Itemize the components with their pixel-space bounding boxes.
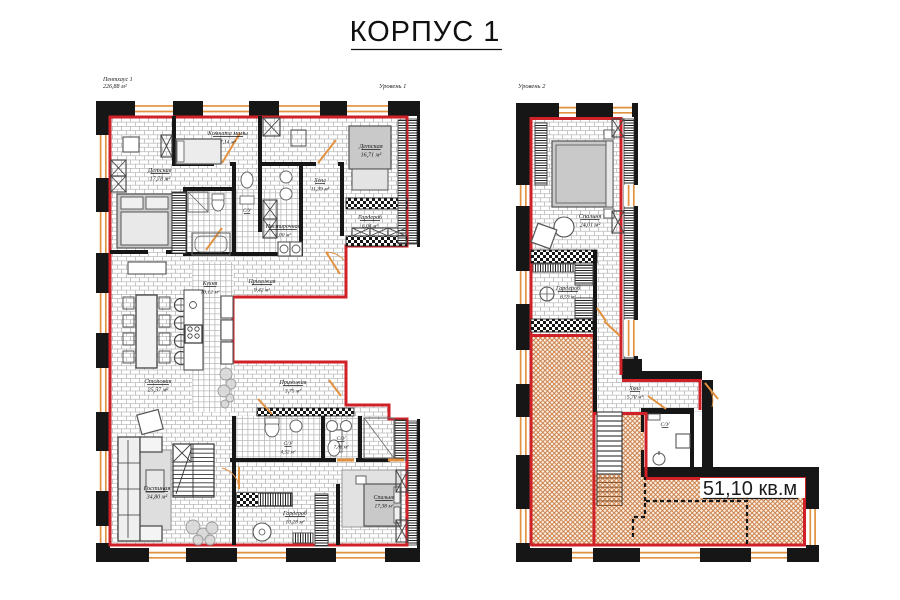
svg-text:17,38 м²: 17,38 м² <box>375 504 394 510</box>
svg-text:Холл: Холл <box>313 178 326 184</box>
svg-text:17,78 м²: 17,78 м² <box>150 177 171 183</box>
svg-text:6,59 м²: 6,59 м² <box>560 295 577 301</box>
svg-text:226,88 м²: 226,88 м² <box>103 84 127 90</box>
svg-text:9,42 м²: 9,42 м² <box>254 287 271 294</box>
svg-text:Кухня: Кухня <box>202 281 218 287</box>
svg-text:34,80 м²: 34,80 м² <box>146 494 168 501</box>
svg-text:Гостиная: Гостиная <box>143 485 171 492</box>
svg-text:С/У: С/У <box>284 441 294 447</box>
svg-text:Постирочная: Постирочная <box>265 224 301 230</box>
svg-text:Уровень 2: Уровень 2 <box>518 83 546 90</box>
svg-text:24,01 м²: 24,01 м² <box>580 222 601 229</box>
svg-text:25,57 м²: 25,57 м² <box>148 388 169 394</box>
svg-text:Детская: Детская <box>147 167 172 174</box>
svg-text:Гардероб: Гардероб <box>555 285 581 292</box>
svg-text:Холл: Холл <box>628 386 641 392</box>
svg-text:Пентхаус 1: Пентхаус 1 <box>102 77 133 83</box>
svg-text:16,71 м²: 16,71 м² <box>361 153 382 159</box>
svg-text:КОРПУС 1: КОРПУС 1 <box>350 16 501 48</box>
svg-text:Прихожая: Прихожая <box>279 380 307 386</box>
svg-text:Спальня: Спальня <box>373 495 394 501</box>
svg-text:6,04 м²: 6,04 м² <box>362 223 379 230</box>
svg-text:Гардероб: Гардероб <box>282 510 308 517</box>
svg-text:51,10 кв.м: 51,10 кв.м <box>703 478 797 500</box>
svg-text:5,70 м²: 5,70 м² <box>627 395 644 401</box>
svg-text:Столовая: Столовая <box>144 378 171 385</box>
svg-text:4,00 м²: 4,00 м² <box>275 232 292 239</box>
svg-text:4,32 м²: 4,32 м² <box>281 450 296 456</box>
svg-text:Спальня: Спальня <box>579 213 602 220</box>
svg-text:3,75 м²: 3,75 м² <box>284 389 302 395</box>
svg-text:С/У: С/У <box>337 436 347 442</box>
svg-text:7,88 м²: 7,88 м² <box>334 445 349 451</box>
svg-text:11,39 м²: 11,39 м² <box>311 187 330 193</box>
svg-text:10,12 м²: 10,12 м² <box>201 290 220 296</box>
svg-text:Комната мамы: Комната мамы <box>207 131 248 137</box>
svg-text:10,28 м²: 10,28 м² <box>286 520 305 526</box>
svg-text:Уровень 1: Уровень 1 <box>379 83 406 90</box>
svg-text:С/У: С/У <box>661 422 671 428</box>
svg-text:Прихожая: Прихожая <box>248 279 276 285</box>
svg-text:Детская: Детская <box>358 143 383 150</box>
svg-text:7,14 м²: 7,14 м² <box>220 139 237 146</box>
svg-text:Гардероб: Гардероб <box>357 214 383 221</box>
